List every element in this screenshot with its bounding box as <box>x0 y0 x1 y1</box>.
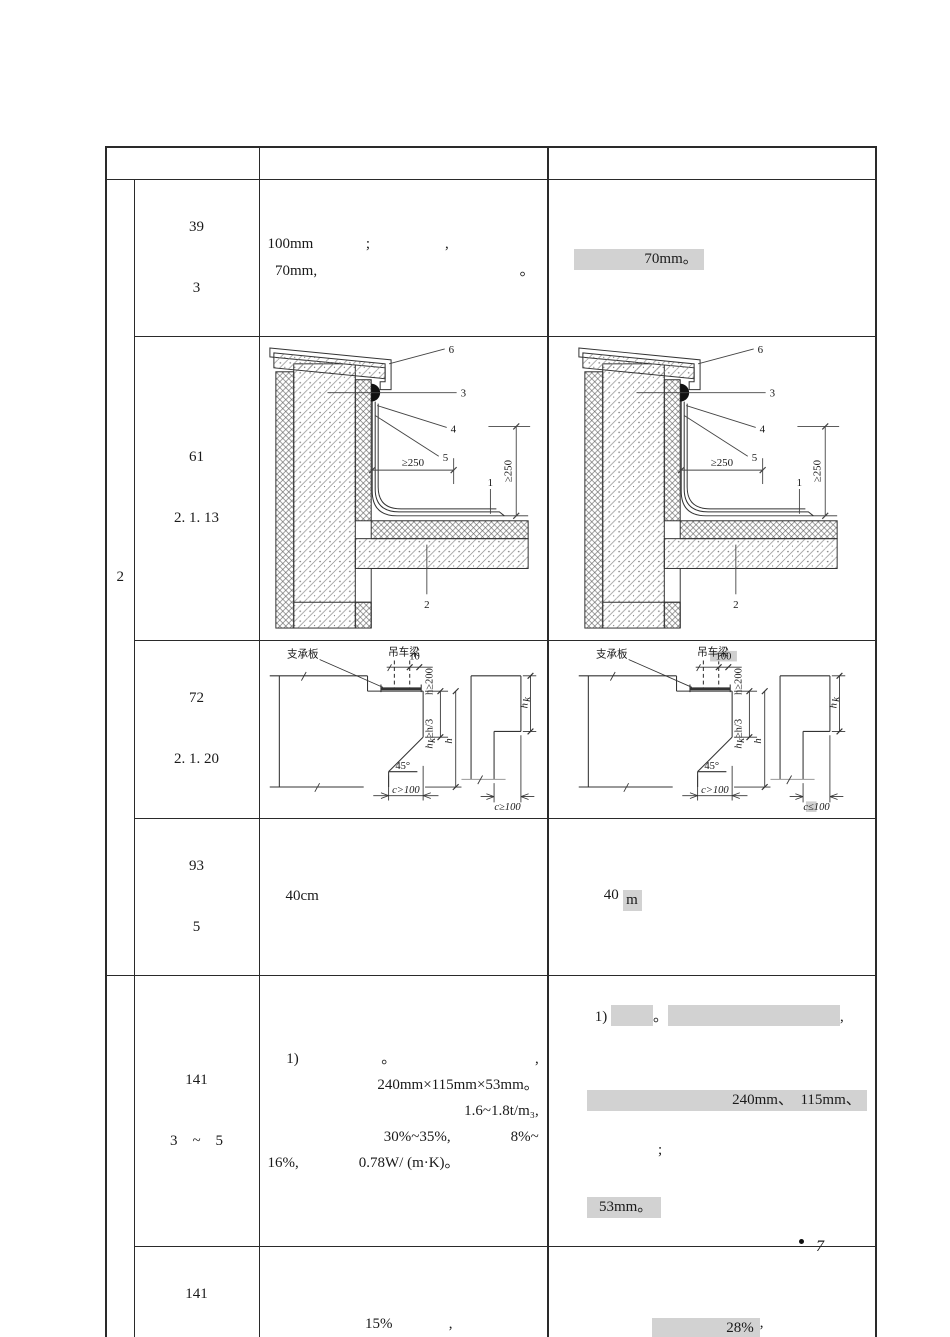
corrected-text-cell: 40 m <box>548 818 876 975</box>
ref-cell-141b: 141 20 ~ 21 <box>134 1246 259 1337</box>
callout-3: 3 <box>769 388 775 400</box>
corrected-drawing-cell: 支承板 吊车梁 100 h≥200 h k ≥h/3 h h k 45° c>1… <box>548 640 876 818</box>
corrected-drawing-cell: 6 3 4 5 1 2 ≥250 ≥250 <box>548 336 876 640</box>
dim-c-notch: c≤100 <box>803 802 830 813</box>
ref-cell-72: 72 2. 1. 20 <box>134 640 259 818</box>
support-plate-label: 支承板 <box>596 647 628 660</box>
original-drawing-cell: 支承板 吊车梁 10 h≥200 h k ≥h/3 h h k 45° c>10… <box>259 640 548 818</box>
dim-top-gap: 100 <box>715 651 731 662</box>
callout-5: 5 <box>751 452 757 464</box>
original-line: 30%~35%, 8%~ <box>268 1124 539 1150</box>
callout-2: 2 <box>733 599 738 611</box>
ref-page: 72 <box>135 685 259 712</box>
corbel-outline <box>270 659 536 802</box>
corrected-text: 。 <box>653 1009 668 1025</box>
svg-text:k: k <box>522 696 533 701</box>
redacted-highlight <box>611 1005 653 1026</box>
group-2-cell: 2 <box>106 179 134 975</box>
ref-line: 5 <box>135 914 259 941</box>
errata-table: 2 39 3 100mm ; , 70mm, 。 70mm。 6 <box>105 146 877 1337</box>
highlight-correction: m <box>623 890 642 911</box>
ref-cell-141a: 141 3 ~ 5 <box>134 975 259 1246</box>
parapet-flashing-detail-corrected: 6 3 4 5 1 2 ≥250 ≥250 <box>574 340 850 636</box>
svg-text:h: h <box>425 743 436 748</box>
callout-5: 5 <box>443 452 449 464</box>
callout-1: 1 <box>796 477 801 489</box>
dim-h: h <box>444 738 455 743</box>
page-number: 7 <box>799 1238 824 1256</box>
crane-beam-corbel-corrected: 支承板 吊车梁 100 h≥200 h k ≥h/3 h h k 45° c>1… <box>573 643 851 816</box>
dim-hk: h k <box>828 696 841 708</box>
ref-cell-93: 93 5 <box>134 818 259 975</box>
svg-text:h: h <box>733 743 744 748</box>
dim-250-horizontal: ≥250 <box>711 457 734 469</box>
support-plate-label: 支承板 <box>287 647 319 660</box>
redacted-highlight <box>668 1005 840 1026</box>
angle-45-label: 45° <box>704 760 719 771</box>
ref-line: 3 <box>135 275 259 302</box>
callout-6: 6 <box>757 344 763 356</box>
group-2-label: 2 <box>117 569 125 585</box>
header-ref-cell <box>106 147 259 179</box>
corrected-text: , <box>760 1315 764 1331</box>
page-bullet-icon <box>799 1239 804 1244</box>
crane-beam-corbel-original: 支承板 吊车梁 10 h≥200 h k ≥h/3 h h k 45° c>10… <box>264 643 542 816</box>
svg-text:k: k <box>831 696 842 701</box>
callout-6: 6 <box>449 344 455 356</box>
ref-cell-39: 39 3 <box>134 179 259 336</box>
ref-page: 93 <box>135 853 259 880</box>
table-row: 72 2. 1. 20 <box>106 640 876 818</box>
highlight-correction: 240mm、 115mm、 <box>587 1090 867 1111</box>
document-page: 2 39 3 100mm ; , 70mm, 。 70mm。 6 <box>0 0 950 1337</box>
corrected-text-cell: 1) 。, 240mm、 115mm、 ; 53mm。 <box>548 975 876 1246</box>
dim-hk: h k <box>520 696 533 708</box>
dim-h-min-200: h≥200 <box>733 668 744 695</box>
original-line: 1) 。 , <box>268 1046 539 1072</box>
ref-page: 141 <box>135 1067 259 1094</box>
ref-page: 61 <box>135 444 259 471</box>
original-text-cell: 100mm ; , 70mm, 。 <box>259 179 548 336</box>
dim-hk-min-h3: h k ≥h/3 <box>425 718 438 748</box>
callout-4: 4 <box>451 423 457 435</box>
table-row: 2 39 3 100mm ; , 70mm, 。 70mm。 <box>106 179 876 336</box>
corrected-line: ; <box>557 1137 867 1163</box>
ref-page: 141 <box>135 1281 259 1308</box>
page-number-value: 7 <box>816 1238 824 1255</box>
svg-text:≥h/3: ≥h/3 <box>425 718 436 737</box>
svg-text:h: h <box>828 703 839 708</box>
header-original-cell <box>259 147 548 179</box>
dim-c-notch: c≥100 <box>494 802 521 813</box>
original-line: 16%, 0.78W/ (m·K)。 <box>268 1150 539 1176</box>
header-corrected-cell <box>548 147 876 179</box>
ref-line: 3 ~ 5 <box>135 1128 259 1155</box>
dim-250-vertical: ≥250 <box>811 459 823 482</box>
table-row: 141 20 ~ 21 15% , 28%, <box>106 1246 876 1337</box>
original-text-cell: 40cm <box>259 818 548 975</box>
dim-c-corbel: c>100 <box>701 784 729 795</box>
table-header-row <box>106 147 876 179</box>
corrected-text-cell: 70mm。 <box>548 179 876 336</box>
callout-4: 4 <box>759 423 765 435</box>
callout-1: 1 <box>488 477 493 489</box>
ref-cell-61: 61 2. 1. 13 <box>134 336 259 640</box>
dim-c-corbel: c>100 <box>392 784 420 795</box>
dim-hk-min-h3: h k ≥h/3 <box>733 718 746 748</box>
original-drawing-cell: 6 3 4 5 1 2 ≥250 ≥250 <box>259 336 548 640</box>
svg-text:h: h <box>520 703 531 708</box>
table-row: 3 141 3 ~ 5 1) 。 , 240mm×115mm×53mm。 1.6… <box>106 975 876 1246</box>
ref-line: 2. 1. 20 <box>135 746 259 773</box>
ref-line: 2. 1. 13 <box>135 505 259 532</box>
dim-250-horizontal: ≥250 <box>402 457 425 469</box>
angle-45-label: 45° <box>395 760 410 771</box>
highlight-correction: 53mm。 <box>587 1197 661 1218</box>
callout-3: 3 <box>461 388 467 400</box>
dim-h-min-200: h≥200 <box>425 668 436 695</box>
corrected-text-cell: 28%, <box>548 1246 876 1337</box>
corrected-text: 40 <box>604 887 623 903</box>
highlight-correction: 70mm。 <box>574 249 704 270</box>
table-row: 61 2. 1. 13 <box>106 336 876 640</box>
original-text-cell: 15% , <box>259 1246 548 1337</box>
group-3-cell: 3 <box>106 975 134 1337</box>
parapet-flashing-detail-original: 6 3 4 5 1 2 ≥250 ≥250 <box>265 340 541 636</box>
dim-250-vertical: ≥250 <box>502 459 514 482</box>
original-line: 100mm ; , <box>268 231 539 258</box>
original-line: 40cm <box>268 883 539 910</box>
corrected-text: , <box>840 1009 844 1025</box>
dim-top-gap: 10 <box>409 651 420 662</box>
dim-h: h <box>753 738 764 743</box>
original-line: 70mm, 。 <box>268 258 539 285</box>
corbel-outline <box>579 659 845 802</box>
original-line: 1.6~1.8t/m₃, <box>268 1098 539 1124</box>
highlight-correction: 28% <box>652 1318 760 1337</box>
original-line: 15% , <box>268 1311 539 1337</box>
corrected-text: 1) <box>595 1009 611 1025</box>
ref-page: 39 <box>135 214 259 241</box>
original-line: 240mm×115mm×53mm。 <box>268 1072 539 1098</box>
table-row: 93 5 40cm 40 m <box>106 818 876 975</box>
svg-text:≥h/3: ≥h/3 <box>733 718 744 737</box>
original-text-cell: 1) 。 , 240mm×115mm×53mm。 1.6~1.8t/m₃, 30… <box>259 975 548 1246</box>
callout-2: 2 <box>424 599 429 611</box>
